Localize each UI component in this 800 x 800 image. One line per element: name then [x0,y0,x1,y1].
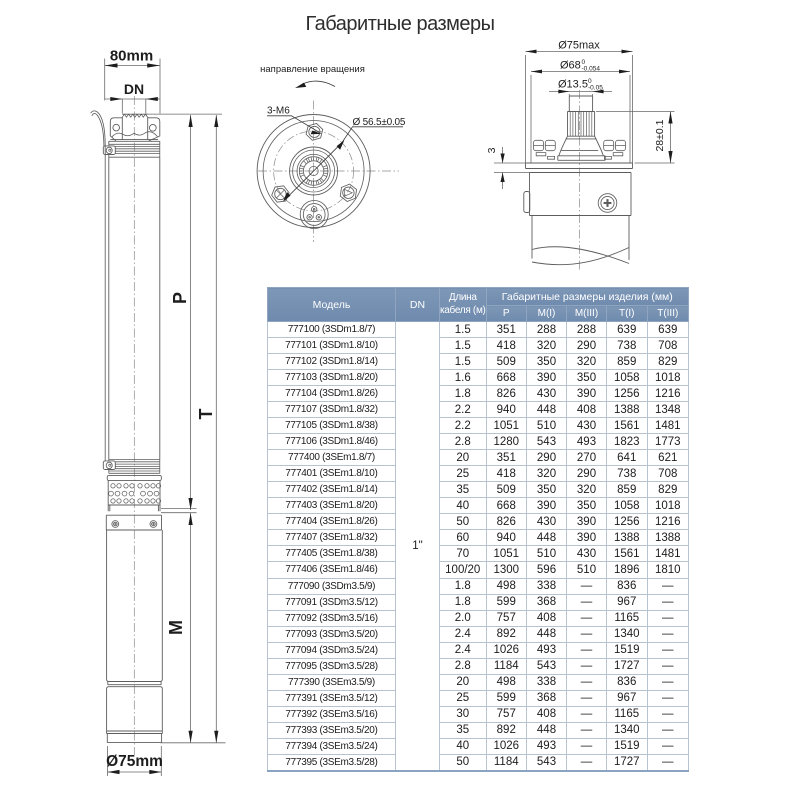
svg-text:Ø75max: Ø75max [558,40,600,52]
svg-text:Ø 56.5±0.05: Ø 56.5±0.05 [353,117,406,128]
svg-text:80mm: 80mm [110,48,153,65]
svg-text:DN: DN [124,81,144,97]
svg-text:3-M6: 3-M6 [267,106,290,117]
svg-text:T: T [196,409,216,420]
svg-text:M: M [166,620,186,635]
svg-text:Ø68: Ø68 [560,60,581,72]
svg-text:-0.05: -0.05 [588,85,603,92]
svg-text:Ø75mm: Ø75mm [106,753,163,770]
svg-text:28±0.1: 28±0.1 [654,119,666,151]
svg-text:P: P [170,292,190,304]
svg-text:направление вращения: направление вращения [260,64,365,75]
svg-text:3: 3 [486,147,498,153]
svg-text:-0.054: -0.054 [582,66,601,73]
svg-text:Ø13.5: Ø13.5 [558,79,588,91]
